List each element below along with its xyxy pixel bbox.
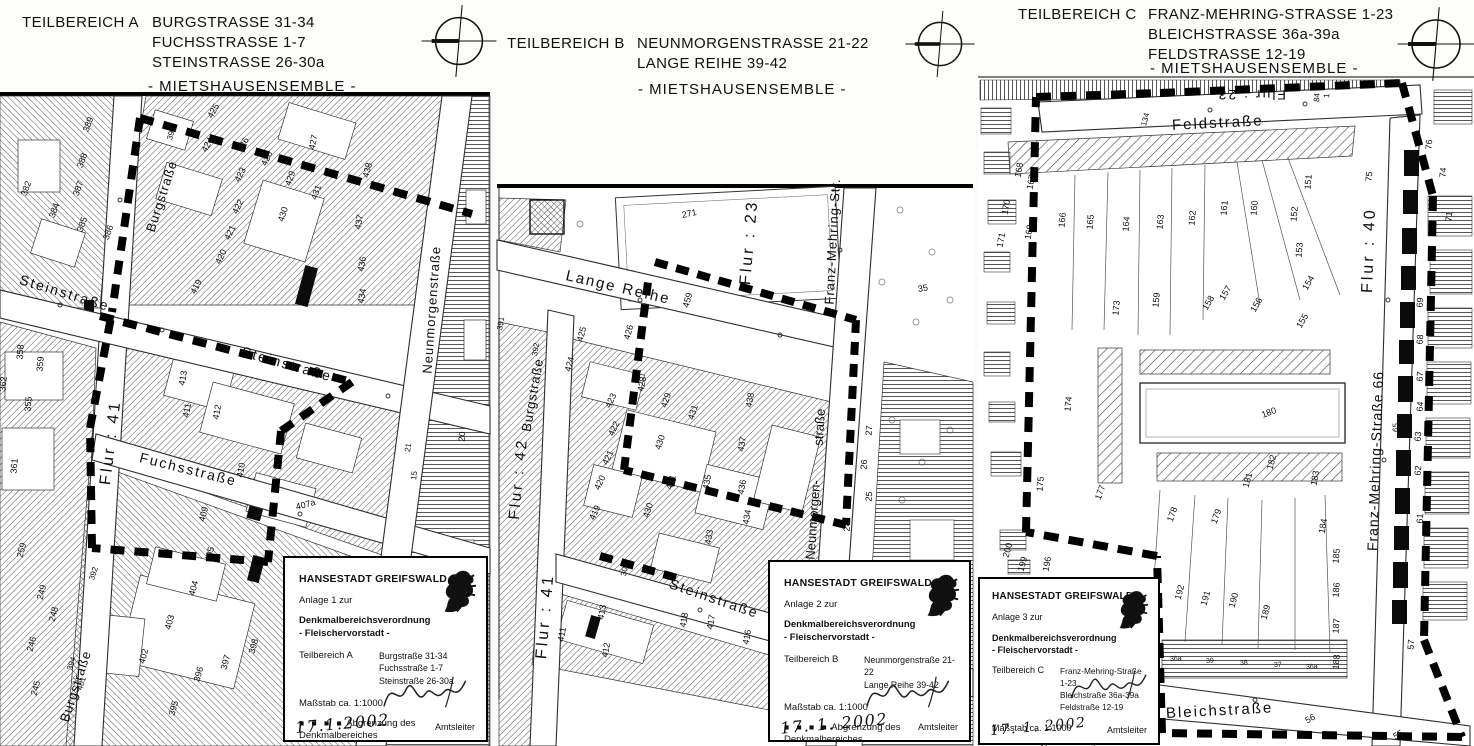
header-street: FRANZ-MEHRING-STRASSE 1-23 (1148, 6, 1393, 23)
header-street: FUCHSSTRASSE 1-7 (152, 34, 325, 51)
scanned-map-document: Burgstraße392SteinstraßeSteinstraßeFlur … (0, 0, 1474, 746)
ordinance-line: Denkmalbereichsverordnung (784, 619, 915, 630)
panel-a-title: TEILBEREICH A (22, 14, 139, 31)
panel-c-title: TEILBEREICH C (1018, 6, 1137, 23)
legend-box-a: HANSESTADT GREIFSWALD Anlage 1 zur Denkm… (283, 556, 488, 742)
teilbereich-label: Teilbereich C (992, 665, 1060, 713)
header-street: STEINSTRASSE 26-30a (152, 54, 325, 71)
legend-box-b: HANSESTADT GREIFSWALD Anlage 2 zur Denkm… (768, 560, 971, 742)
legend-street: Burgstraße 31-34 (379, 650, 454, 663)
cadastral-map-drawing (0, 0, 1474, 746)
district-name: - Fleischervorstadt - (992, 645, 1078, 655)
header-street: BLEICHSTRASSE 36a-39a (1148, 26, 1393, 43)
signature-title: Amtsleiter (435, 722, 475, 733)
district-name: - Fleischervorstadt - (784, 632, 875, 643)
signature-title: Amtsleiter (918, 722, 958, 733)
teilbereich-label: Teilbereich A (299, 650, 379, 688)
signature-title: Amtsleiter (1107, 725, 1147, 736)
panel-b-title: TEILBEREICH B (507, 35, 625, 52)
panel-b-subtitle: - MIETSHAUSENSEMBLE - (638, 81, 847, 98)
header-street: BURGSTRASSE 31-34 (152, 14, 325, 31)
greifswald-coat-of-arms-icon (918, 571, 960, 618)
date-handwritten: 17. 1. 2002 (989, 715, 1087, 740)
compass-icon (904, 8, 976, 80)
legend-box-c: HANSESTADT GREIFSWALD Anlage 3 zur Denkm… (978, 577, 1160, 745)
ordinance-title: Denkmalbereichsverordnung - Fleischervor… (992, 632, 1148, 656)
greifswald-coat-of-arms-icon (435, 567, 477, 614)
header-street: NEUNMORGENSTRASSE 21-22 (637, 35, 869, 52)
panel-b-street-list: NEUNMORGENSTRASSE 21-22 LANGE REIHE 39-4… (637, 35, 869, 75)
panel-c-street-list: FRANZ-MEHRING-STRASSE 1-23 BLEICHSTRASSE… (1148, 6, 1393, 66)
ordinance-title: Denkmalbereichsverordnung - Fleischervor… (299, 615, 474, 641)
ordinance-line: Denkmalbereichsverordnung (299, 615, 430, 626)
panel-a-street-list: BURGSTRASSE 31-34 FUCHSSTRASSE 1-7 STEIN… (152, 14, 325, 74)
signature (861, 664, 953, 720)
compass-icon (420, 2, 498, 80)
signature (1066, 661, 1150, 709)
ordinance-title: Denkmalbereichsverordnung - Fleischervor… (784, 619, 957, 645)
panel-a-subtitle: - MIETSHAUSENSEMBLE - (148, 78, 357, 95)
signature (378, 664, 470, 720)
ordinance-line: Denkmalbereichsverordnung (992, 633, 1117, 643)
greifswald-coat-of-arms-icon (1111, 588, 1149, 630)
teilbereich-label: Teilbereich B (784, 654, 864, 692)
district-name: - Fleischervorstadt - (299, 628, 390, 639)
compass-icon (1396, 4, 1474, 84)
panel-c-subtitle: - MIETSHAUSENSEMBLE - (1150, 60, 1359, 77)
header-street: LANGE REIHE 39-42 (637, 55, 869, 72)
